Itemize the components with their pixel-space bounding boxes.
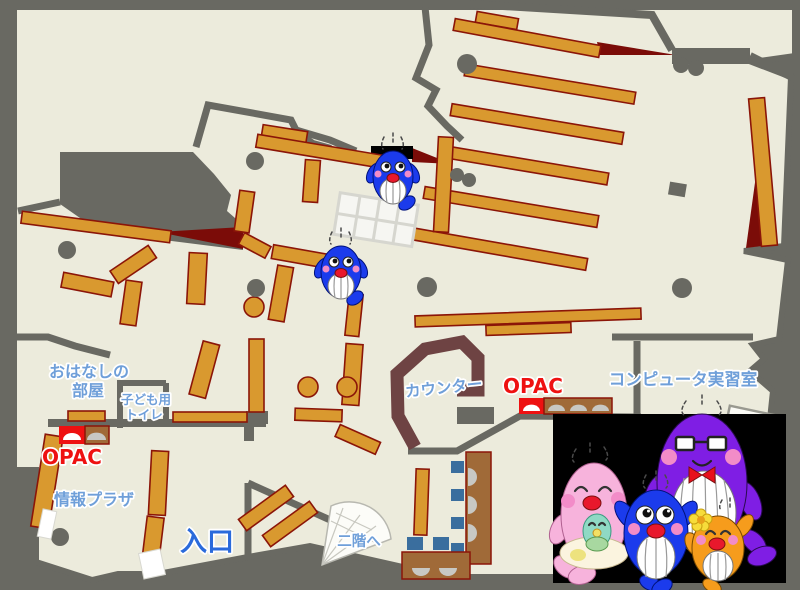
chair <box>433 537 449 550</box>
whale-cheek <box>375 171 382 178</box>
whale-mouth <box>387 174 399 183</box>
chair <box>451 489 464 501</box>
label-stairs-to-2f: 二階へ <box>337 532 381 550</box>
whale-pupil <box>385 164 390 169</box>
eye-glint <box>667 510 670 513</box>
bookshelf <box>68 411 105 421</box>
label-computer-room: コンピュータ実習室 <box>609 369 758 389</box>
bookshelf <box>486 323 571 336</box>
whale-cheek <box>405 171 412 178</box>
bookshelf <box>295 408 342 422</box>
wall-block <box>246 411 268 424</box>
label-info-plaza: 情報プラザ <box>54 490 134 509</box>
whale-mouth <box>335 269 347 278</box>
round-table <box>244 297 264 317</box>
apron-patch <box>570 549 586 561</box>
label-storytelling-room-line2: 部屋 <box>72 381 104 400</box>
wall-left-border <box>0 0 14 473</box>
baby-bib <box>586 537 608 551</box>
baby-whale <box>583 514 611 551</box>
whale-pupil <box>663 509 672 518</box>
whale-cheek <box>628 523 640 535</box>
bookshelf <box>173 412 247 422</box>
pillar <box>247 279 265 297</box>
label-storytelling-room-line1: おはなしの <box>49 362 129 381</box>
glasses-lens <box>676 437 694 450</box>
label-kids-toilet-line1: 子ども用 <box>121 392 171 407</box>
bookshelf <box>249 339 264 412</box>
whale-pupil <box>347 259 352 264</box>
pillar <box>51 528 69 546</box>
bookshelf <box>303 160 321 203</box>
chair <box>451 461 464 473</box>
pillar <box>688 60 704 76</box>
wall-top-border <box>0 0 800 7</box>
chair <box>407 537 423 550</box>
pillar <box>246 152 264 170</box>
character-panel <box>545 395 786 590</box>
pillar <box>450 168 464 182</box>
pillar <box>457 54 477 74</box>
round-table <box>337 377 357 397</box>
label-opac-left: OPAC <box>42 445 102 469</box>
eye-glint <box>647 510 650 513</box>
label-entrance: 入口 <box>180 527 234 558</box>
wall-stub <box>244 426 254 441</box>
floor-map-svg: おはなしの 部屋 子ども用 トイレ OPAC 情報プラザ 入口 二階へ カウンタ… <box>0 0 800 590</box>
whale-cheek <box>661 449 677 465</box>
whale-cheek <box>696 535 706 545</box>
whale-mouth <box>647 524 665 538</box>
whale-cheek <box>353 266 360 273</box>
whale-cheek <box>671 523 683 535</box>
pillar <box>462 173 476 187</box>
baby-pacifier <box>593 529 601 537</box>
pillar <box>58 241 76 259</box>
whale-mouth <box>709 538 725 550</box>
whale-pupil <box>643 509 652 518</box>
shelf-end-cap <box>668 182 687 198</box>
wall-counter-block <box>457 407 494 424</box>
whale-mouth <box>583 496 601 510</box>
round-table <box>298 377 318 397</box>
whale-pupil <box>399 164 404 169</box>
whale-cheek <box>561 494 575 508</box>
pc-desk-horizontal <box>402 552 470 579</box>
label-opac-right: OPAC <box>503 374 563 398</box>
whale-cheek <box>725 449 741 465</box>
bookshelf <box>143 516 164 555</box>
pillar <box>417 277 437 297</box>
whale-pupil <box>333 259 338 264</box>
bookshelf <box>187 253 208 305</box>
door-gap <box>139 549 166 579</box>
pillar <box>672 278 692 298</box>
label-kids-toilet-line2: トイレ <box>125 407 163 422</box>
pillar <box>673 57 689 73</box>
library-floor-map: おはなしの 部屋 子ども用 トイレ OPAC 情報プラザ 入口 二階へ カウンタ… <box>0 0 800 590</box>
glasses-lens <box>708 437 726 450</box>
opac-station-left <box>59 426 109 444</box>
opac-station-right <box>519 398 612 414</box>
whale-cheek <box>728 535 738 545</box>
whale-cheek <box>323 266 330 273</box>
chair <box>451 517 464 529</box>
bookshelf <box>414 469 429 535</box>
bookshelf <box>148 451 168 516</box>
